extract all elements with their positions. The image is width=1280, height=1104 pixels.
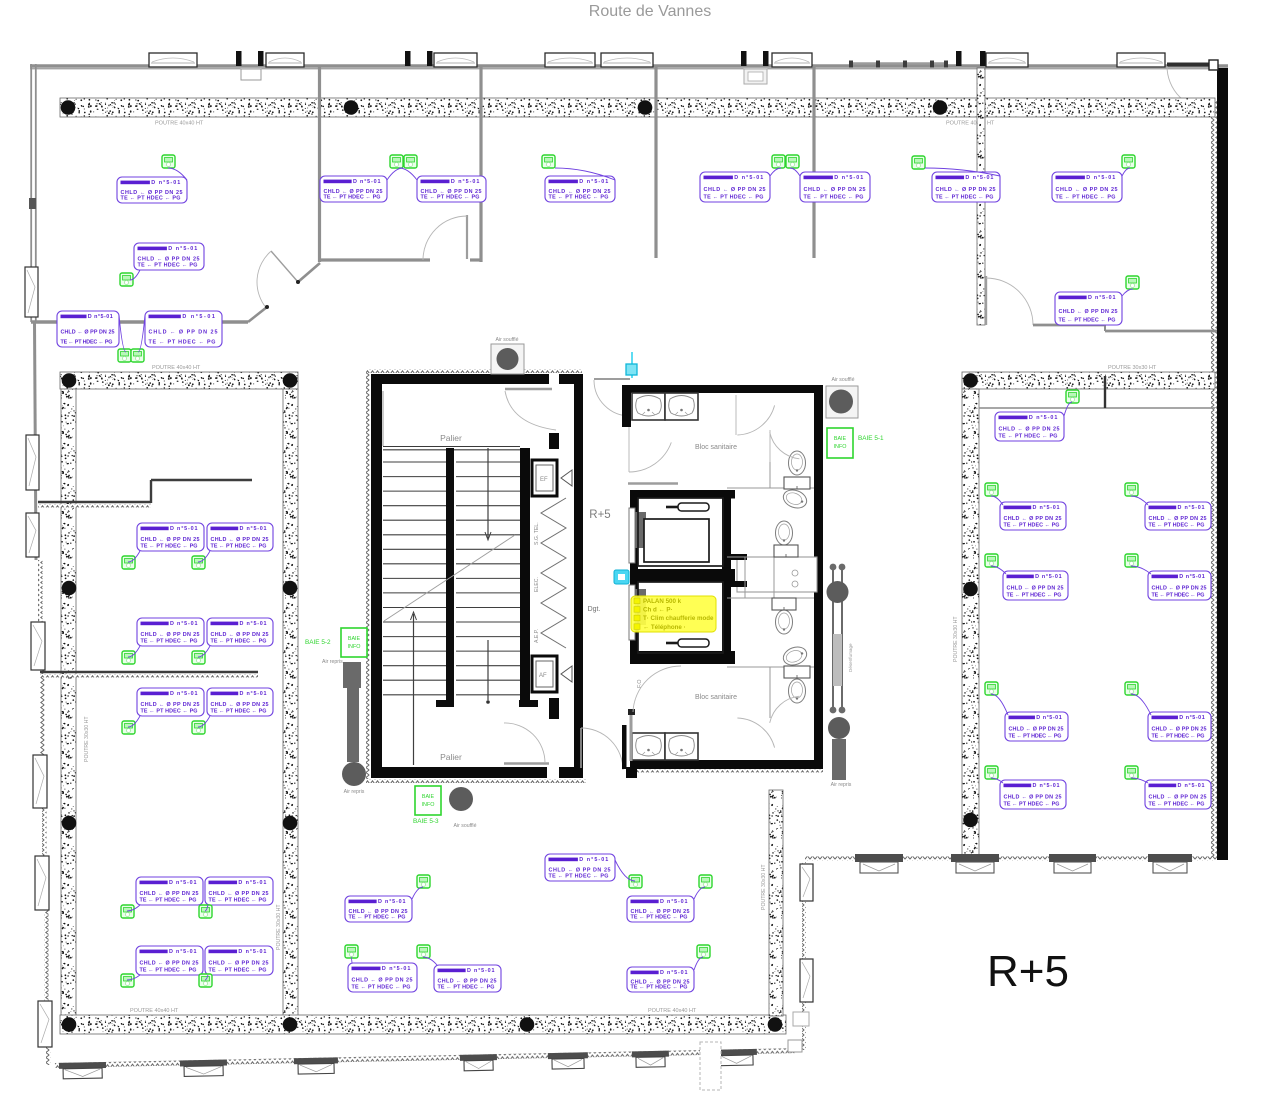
svg-text:TE ← PT HDEC ← PG: TE ← PT HDEC ← PG xyxy=(61,340,113,346)
svg-text:INFO: INFO xyxy=(422,802,435,808)
svg-text:CHLD ← Ø PP DN 25: CHLD ← Ø PP DN 25 xyxy=(209,891,269,897)
svg-text:F.O: F.O xyxy=(637,679,643,688)
svg-text:TE ← PT HDEC ← PG: TE ← PT HDEC ← PG xyxy=(149,340,216,346)
svg-text:TE ← PT HDEC ← PG: TE ← PT HDEC ← PG xyxy=(1004,523,1060,529)
svg-text:CHLD ← Ø PP DN 25: CHLD ← Ø PP DN 25 xyxy=(1007,586,1064,592)
svg-text:CHLD ← Ø PP DN 25: CHLD ← Ø PP DN 25 xyxy=(1056,187,1118,193)
svg-text:BAIE: BAIE xyxy=(422,794,435,800)
svg-text:CHLD ← Ø PP DN 25: CHLD ← Ø PP DN 25 xyxy=(211,537,269,543)
svg-text:D n°5-01: D n°5-01 xyxy=(170,621,198,627)
svg-text:D n°5-01: D n°5-01 xyxy=(240,621,267,627)
svg-text:CHLD ← Ø PP DN 25: CHLD ← Ø PP DN 25 xyxy=(1004,516,1062,522)
svg-text:TE ← PT HDEC ← PG: TE ← PT HDEC ← PG xyxy=(421,195,480,201)
svg-text:D n°5-01: D n°5-01 xyxy=(1033,783,1060,789)
svg-text:D n°5-01: D n°5-01 xyxy=(238,949,266,955)
svg-text:Air repris: Air repris xyxy=(344,789,365,795)
svg-text:← Téléphone ·: ← Téléphone · xyxy=(643,624,686,631)
svg-text:CHLD ← Ø PP DN 25: CHLD ← Ø PP DN 25 xyxy=(999,427,1060,433)
svg-text:CHLD ← Ø PP DN 25: CHLD ← Ø PP DN 25 xyxy=(141,537,200,543)
svg-text:POUTRE 30x30 HT: POUTRE 30x30 HT xyxy=(1108,365,1157,371)
svg-text:TE ← PT HDEC ← PG: TE ← PT HDEC ← PG xyxy=(349,915,406,921)
svg-text:CHLD ← Ø PP DN 25: CHLD ← Ø PP DN 25 xyxy=(211,702,269,708)
svg-text:CHLD ← Ø PP DN 25: CHLD ← Ø PP DN 25 xyxy=(209,961,269,967)
svg-text:Palier: Palier xyxy=(440,752,462,762)
svg-text:TE ← PT HDEC ← PG: TE ← PT HDEC ← PG xyxy=(121,196,181,202)
svg-text:CHLD ← Ø PP DN 25: CHLD ← Ø PP DN 25 xyxy=(704,187,766,193)
svg-text:TE ← PT HDEC ← PG: TE ← PT HDEC ← PG xyxy=(631,985,688,991)
svg-text:Air soufflé: Air soufflé xyxy=(454,823,477,829)
svg-text:TE ← PT HDEC ← PG: TE ← PT HDEC ← PG xyxy=(211,639,267,645)
svg-text:D n°5-01: D n°5-01 xyxy=(1036,715,1062,721)
svg-text:POUTRE 30x30 HT: POUTRE 30x30 HT xyxy=(953,616,959,662)
svg-text:Bloc sanitaire: Bloc sanitaire xyxy=(695,694,737,701)
svg-text:D n°5-01: D n°5-01 xyxy=(240,691,267,697)
svg-text:D n°5-01: D n°5-01 xyxy=(240,526,267,532)
svg-text:D n°5-01: D n°5-01 xyxy=(1033,505,1060,511)
svg-text:D n°5-01: D n°5-01 xyxy=(88,314,113,320)
svg-text:D n°5-01: D n°5-01 xyxy=(734,175,763,181)
svg-text:D n°5-01: D n°5-01 xyxy=(965,175,993,181)
svg-text:EF: EF xyxy=(540,477,548,483)
svg-text:TE ← PT HDEC ← PG: TE ← PT HDEC ← PG xyxy=(1007,593,1062,599)
svg-text:CHLD ← Ø PP DN 25: CHLD ← Ø PP DN 25 xyxy=(141,702,200,708)
svg-text:TE ← PT HDEC ← PG: TE ← PT HDEC ← PG xyxy=(141,639,198,645)
svg-text:Désenfumage: Désenfumage xyxy=(848,643,853,672)
svg-text:TE ← PT HDEC ← PG: TE ← PT HDEC ← PG xyxy=(999,434,1058,440)
svg-text:TE ← PT HDEC ← PG: TE ← PT HDEC ← PG xyxy=(1152,593,1205,599)
svg-text:R+5: R+5 xyxy=(987,947,1069,996)
svg-text:CHLD ← Ø PP DN 25: CHLD ← Ø PP DN 25 xyxy=(211,632,269,638)
svg-text:TE ← PT HDEC ← PG: TE ← PT HDEC ← PG xyxy=(140,898,197,904)
svg-text:TE ← PT HDEC ← PG: TE ← PT HDEC ← PG xyxy=(1149,802,1205,808)
svg-text:POUTRE 40x40 HT: POUTRE 40x40 HT xyxy=(155,121,204,127)
svg-text:CHLD ← Ø PP DN 25: CHLD ← Ø PP DN 25 xyxy=(1152,727,1207,733)
svg-text:CHLD ← Ø PP DN 25: CHLD ← Ø PP DN 25 xyxy=(140,961,199,967)
svg-text:TE ← PT HDEC ← PG: TE ← PT HDEC ← PG xyxy=(211,544,267,550)
svg-text:D n°5-01: D n°5-01 xyxy=(579,857,608,863)
svg-text:D n°5-01: D n°5-01 xyxy=(378,899,406,905)
svg-text:D n°5-01: D n°5-01 xyxy=(1088,295,1116,301)
svg-text:TE ← PT HDEC ← PG: TE ← PT HDEC ← PG xyxy=(1009,734,1062,740)
svg-text:D n°5-01: D n°5-01 xyxy=(1178,505,1205,511)
svg-text:Ch d ← P·: Ch d ← P· xyxy=(643,607,673,614)
svg-text:POUTRE 30x30 HT: POUTRE 30x30 HT xyxy=(761,864,767,910)
svg-text:TE ← PT HDEC ← PG: TE ← PT HDEC ← PG xyxy=(1059,318,1116,324)
svg-text:CHLD ← Ø PP DN 25: CHLD ← Ø PP DN 25 xyxy=(141,632,200,638)
svg-text:BAIE 5-2: BAIE 5-2 xyxy=(305,639,331,646)
svg-text:POUTRE 40x40 HT: POUTRE 40x40 HT xyxy=(648,1008,697,1014)
svg-text:D n°5-01: D n°5-01 xyxy=(1086,175,1115,181)
svg-text:D n°5-01: D n°5-01 xyxy=(1035,574,1062,580)
svg-text:AF: AF xyxy=(539,673,547,679)
svg-text:Air repris: Air repris xyxy=(831,782,852,788)
svg-text:D n°5-01: D n°5-01 xyxy=(170,526,198,532)
svg-text:TE ← PT HDEC ← PG: TE ← PT HDEC ← PG xyxy=(1004,802,1060,808)
svg-text:POUTRE 30x30 HT: POUTRE 30x30 HT xyxy=(84,716,90,762)
svg-text:CHLD ← Ø PP DN 25: CHLD ← Ø PP DN 25 xyxy=(149,330,218,336)
svg-text:D n°5-01: D n°5-01 xyxy=(660,899,688,905)
svg-text:TE ← PT HDEC ← PG: TE ← PT HDEC ← PG xyxy=(631,915,688,921)
svg-text:D n°5-01: D n°5-01 xyxy=(579,179,608,185)
svg-text:TE ← PT HDEC ← PG: TE ← PT HDEC ← PG xyxy=(141,709,198,715)
svg-text:TE ← PT HDEC ← PG: TE ← PT HDEC ← PG xyxy=(549,874,609,880)
svg-text:CHLD ← Ø PP DN 25: CHLD ← Ø PP DN 25 xyxy=(1004,795,1062,801)
svg-text:TE ← PT HDEC ← PG: TE ← PT HDEC ← PG xyxy=(352,985,411,991)
svg-text:CHLD ← Ø PP DN 25: CHLD ← Ø PP DN 25 xyxy=(804,187,866,193)
svg-text:TE ← PT HDEC ← PG: TE ← PT HDEC ← PG xyxy=(138,263,198,269)
svg-text:D n°5-01: D n°5-01 xyxy=(467,968,495,974)
svg-text:BAIE: BAIE xyxy=(834,436,847,442)
svg-text:TE ← PT HDEC ← PG: TE ← PT HDEC ← PG xyxy=(1056,195,1116,201)
svg-text:S.G. TEL.: S.G. TEL. xyxy=(534,522,540,545)
svg-text:D n°5-01: D n°5-01 xyxy=(169,949,197,955)
svg-text:INFO: INFO xyxy=(348,644,361,650)
svg-text:D n°5-01: D n°5-01 xyxy=(382,966,411,972)
svg-text:D n°5-01: D n°5-01 xyxy=(168,246,197,252)
svg-text:D n°5-01: D n°5-01 xyxy=(182,314,215,320)
svg-text:D n°5-01: D n°5-01 xyxy=(238,880,266,886)
svg-text:BAIE 5-1: BAIE 5-1 xyxy=(858,435,884,442)
svg-text:Air soufflé: Air soufflé xyxy=(496,337,519,343)
svg-text:POUTRE 30x30 HT: POUTRE 30x30 HT xyxy=(276,904,282,950)
svg-text:TE ← PT HDEC ← PG: TE ← PT HDEC ← PG xyxy=(140,968,197,974)
svg-text:TE ← PT HDEC ← PG: TE ← PT HDEC ← PG xyxy=(1149,523,1205,529)
svg-text:CHLD ← Ø PP DN 25: CHLD ← Ø PP DN 25 xyxy=(352,978,413,984)
svg-text:D n°5-01: D n°5-01 xyxy=(151,180,180,186)
svg-text:BAIE 5-3: BAIE 5-3 xyxy=(413,818,439,825)
svg-text:D n°5-01: D n°5-01 xyxy=(1178,783,1205,789)
svg-text:D n°5-01: D n°5-01 xyxy=(1029,415,1058,421)
svg-text:Route de Vannes: Route de Vannes xyxy=(589,3,711,20)
svg-text:A.E.P.: A.E.P. xyxy=(534,629,540,643)
svg-text:CHLD ← Ø PP DN 25: CHLD ← Ø PP DN 25 xyxy=(1152,586,1207,592)
svg-text:R+5: R+5 xyxy=(589,509,610,521)
svg-text:D n°5-01: D n°5-01 xyxy=(169,880,197,886)
svg-text:D n°5-01: D n°5-01 xyxy=(1179,574,1205,580)
svg-text:POUTRE 40x40 HT: POUTRE 40x40 HT xyxy=(130,1008,179,1014)
svg-text:D n°5-01: D n°5-01 xyxy=(451,179,480,185)
svg-text:Air repris: Air repris xyxy=(322,659,343,665)
svg-text:CHLD ← Ø PP DN 25: CHLD ← Ø PP DN 25 xyxy=(1149,516,1207,522)
svg-text:CHLD ← Ø PP DN 25: CHLD ← Ø PP DN 25 xyxy=(1149,795,1207,801)
svg-text:Bloc sanitaire: Bloc sanitaire xyxy=(695,444,737,451)
svg-text:TE ← PT HDEC ← PG: TE ← PT HDEC ← PG xyxy=(324,195,381,201)
svg-text:POUTRE 40x40 HT: POUTRE 40x40 HT xyxy=(946,121,995,127)
svg-text:D n°5-01: D n°5-01 xyxy=(1179,715,1205,721)
svg-text:TE ← PT HDEC ← PG: TE ← PT HDEC ← PG xyxy=(209,968,267,974)
svg-text:INFO: INFO xyxy=(834,444,847,450)
svg-text:BAIE: BAIE xyxy=(348,636,361,642)
svg-text:D n°5-01: D n°5-01 xyxy=(834,175,863,181)
svg-text:Air soufflé: Air soufflé xyxy=(832,377,855,383)
svg-text:TE ← PT HDEC ← PG: TE ← PT HDEC ← PG xyxy=(549,195,609,201)
svg-text:TE ← PT HDEC ← PG: TE ← PT HDEC ← PG xyxy=(209,898,267,904)
svg-text:Dgt.: Dgt. xyxy=(588,606,601,613)
svg-text:CHLD ← Ø PP DN 25: CHLD ← Ø PP DN 25 xyxy=(1009,727,1064,733)
svg-text:ELEC.: ELEC. xyxy=(534,577,540,592)
svg-text:TE ← PT HDEC ← PG: TE ← PT HDEC ← PG xyxy=(211,709,267,715)
svg-text:CHLD ← Ø PP DN 25: CHLD ← Ø PP DN 25 xyxy=(936,187,996,193)
svg-text:D n°5-01: D n°5-01 xyxy=(353,179,381,185)
svg-text:CHLD ← Ø PP DN 25: CHLD ← Ø PP DN 25 xyxy=(61,330,115,336)
svg-text:D n°5-01: D n°5-01 xyxy=(170,691,198,697)
svg-text:TE ← PT HDEC ← PG: TE ← PT HDEC ← PG xyxy=(936,195,994,201)
svg-text:TE ← PT HDEC ← PG: TE ← PT HDEC ← PG xyxy=(704,195,764,201)
svg-text:POUTRE 40x40 HT: POUTRE 40x40 HT xyxy=(152,365,201,371)
svg-text:CHLD ← Ø PP DN 25: CHLD ← Ø PP DN 25 xyxy=(140,891,199,897)
svg-text:CHLD ← Ø PP DN 25: CHLD ← Ø PP DN 25 xyxy=(1059,309,1118,315)
svg-text:TE ← PT HDEC ← PG: TE ← PT HDEC ← PG xyxy=(1152,734,1205,740)
svg-text:Palier: Palier xyxy=(440,433,462,443)
svg-text:TE ← PT HDEC ← PG: TE ← PT HDEC ← PG xyxy=(438,985,495,991)
svg-text:TE ← PT HDEC ← PG: TE ← PT HDEC ← PG xyxy=(141,544,198,550)
svg-text:D n°5-01: D n°5-01 xyxy=(660,970,688,976)
svg-text:PALAN 500 k: PALAN 500 k xyxy=(643,598,682,605)
svg-text:T· Clim chaufferie mode: T· Clim chaufferie mode xyxy=(643,615,714,622)
svg-text:TE ← PT HDEC ← PG: TE ← PT HDEC ← PG xyxy=(804,195,864,201)
